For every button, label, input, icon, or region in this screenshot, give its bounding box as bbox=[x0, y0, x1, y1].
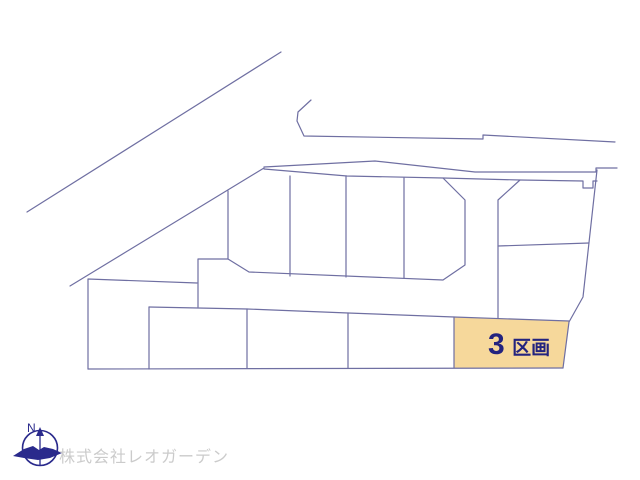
bottom-row-dividers bbox=[149, 307, 454, 369]
south-boundary-line bbox=[88, 368, 563, 369]
north-boundary-line bbox=[297, 100, 615, 142]
north-compass-icon: N bbox=[13, 421, 62, 466]
road-edge-lower bbox=[70, 168, 264, 286]
compass-north-label: N bbox=[27, 421, 36, 435]
company-name: 株式会社レオガーデン bbox=[59, 447, 229, 466]
strip-upper-line bbox=[264, 161, 617, 172]
east-diagonal-boundary bbox=[563, 170, 597, 368]
site-plan-svg: 3 区画 N 株式会社レオガーデン bbox=[0, 0, 640, 480]
road-edge-upper bbox=[27, 52, 281, 212]
step-parcel-edge bbox=[198, 259, 228, 307]
right-parcel-outline bbox=[498, 180, 520, 318]
bottom-row-top-edge bbox=[149, 307, 569, 321]
site-plan-page: 3 区画 N 株式会社レオガーデン bbox=[0, 0, 640, 480]
parcel-3-label-number: 3 bbox=[488, 328, 505, 361]
middle-block-dividers bbox=[290, 176, 404, 278]
right-parcel-divider bbox=[498, 243, 589, 246]
left-parcel-outline bbox=[88, 279, 197, 369]
parcel-3-label-suffix: 区画 bbox=[512, 338, 550, 359]
